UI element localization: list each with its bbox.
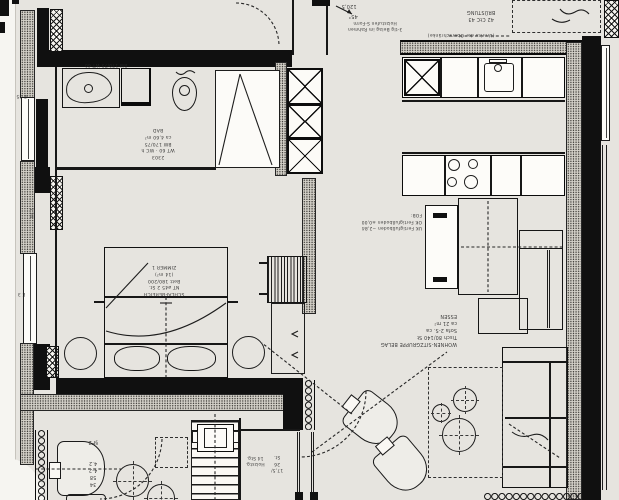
wall-left-solid-b xyxy=(33,167,50,193)
bedroom-label-block: SCHLAFBEREICH NT ø45 2 St. Bett 180/200 … xyxy=(134,249,194,296)
wall-line-corridor xyxy=(238,429,300,431)
counter-divider xyxy=(444,156,446,195)
page-edge-line xyxy=(15,0,16,500)
nightstand-left xyxy=(64,337,97,370)
railing-right xyxy=(602,145,607,490)
bench-inner-line xyxy=(547,250,550,328)
wall-bath-bottom-line xyxy=(56,167,216,170)
tub-dimension-label: BW 170/75 WT 60 xyxy=(60,60,152,67)
bed-pillow-line xyxy=(105,343,227,345)
clothes-rail xyxy=(267,256,307,303)
door-jamb-right xyxy=(311,432,314,500)
wall-bedroom-bottom xyxy=(56,378,303,394)
armchair-foot xyxy=(341,394,360,414)
top-right-note: 42 CtC 43 BRÜSTUNG xyxy=(450,1,512,21)
rail-bracket xyxy=(259,293,268,295)
wardrobe-xbox-2 xyxy=(287,104,323,139)
toilet-bowl xyxy=(179,85,190,96)
armchair-living-b xyxy=(370,433,436,500)
door-type-label: §F2 xyxy=(84,435,102,445)
nesting-table-small xyxy=(432,404,450,422)
wall-topleft-vertical xyxy=(37,8,49,52)
stair-riser-numbers: 34 58 4-2 4.2 xyxy=(85,450,101,486)
radiator-coil xyxy=(484,491,581,500)
window-left-lower xyxy=(23,253,37,344)
counter-front-edge xyxy=(402,100,565,102)
handle-mark xyxy=(433,213,447,218)
balcony-outline xyxy=(512,0,601,33)
counter-divider xyxy=(490,156,492,195)
round-table-b xyxy=(147,484,175,500)
stair-flange xyxy=(233,431,239,443)
bed-head-divider xyxy=(105,296,227,298)
wall-left-jamb xyxy=(36,99,48,168)
bed-side-tick xyxy=(94,301,104,303)
entry-door-arc xyxy=(236,3,279,46)
window-right-top xyxy=(601,45,610,141)
counter-divider xyxy=(440,58,442,97)
stove-burner xyxy=(448,159,460,171)
window-dimension: 1,24 xyxy=(23,205,33,221)
counter-back-edge xyxy=(402,152,565,154)
window-left-upper xyxy=(21,97,35,161)
square-table-dashed xyxy=(155,437,188,468)
bedroom-cabinet xyxy=(271,303,305,374)
left-wall-label-upper: E 35 xyxy=(14,86,29,98)
entry-door-frame xyxy=(326,0,328,55)
sofa-armrest-line xyxy=(549,362,551,487)
wall-inner-left-face xyxy=(55,67,57,378)
wall-hatch-left-c xyxy=(46,346,59,378)
bathroom-door-frame xyxy=(215,70,280,168)
bench-upper xyxy=(519,230,563,249)
hall-floor-note: UK Fertigfußboden −2,84 OK Fertigfußbode… xyxy=(318,202,422,230)
scan-artifact xyxy=(0,0,9,16)
wall-left-stipple-a xyxy=(20,10,35,98)
floor-plan-drawing: BW 170/75 WT 60 2303 WT 60 · WC h BW 170… xyxy=(0,0,619,500)
stair-landing-inner xyxy=(204,428,227,448)
wall-coil-center xyxy=(302,380,315,430)
dimension-45deg: 45° xyxy=(345,11,361,19)
wall-right-solid xyxy=(582,36,601,500)
bed-pillow-right xyxy=(167,346,216,371)
entry-door-frame xyxy=(292,0,294,55)
wall-stub-center xyxy=(283,378,302,430)
wardrobe-xbox-3 xyxy=(287,138,323,174)
wall-right-stipple xyxy=(566,42,582,500)
sofa-back-line xyxy=(503,361,567,363)
scan-artifact xyxy=(0,22,5,33)
entry-threshold xyxy=(312,0,330,6)
nesting-table-mid xyxy=(453,388,477,412)
living-label-block: WOHNEN-SITZGRUPPE BELAG Tisch 80/140 St … xyxy=(345,298,457,346)
bed-pillow-left xyxy=(114,346,160,371)
wall-hatch-topright xyxy=(604,0,619,38)
dining-table xyxy=(458,198,518,295)
scanned-floor-plan-page: BW 170/75 WT 60 2303 WT 60 · WC h BW 170… xyxy=(0,0,619,500)
page-margin-left xyxy=(0,0,16,500)
sink-faucet xyxy=(494,64,502,72)
bathroom-label-block: 2303 WT 60 · WC h BW 170/75 ca 4,60 m² B… xyxy=(126,101,190,159)
bed-side-tick xyxy=(228,301,238,303)
bathtub-drain xyxy=(84,84,93,93)
nesting-table-large xyxy=(442,418,476,452)
dimension-120: 120,5 xyxy=(337,0,361,9)
sofa-foot-line xyxy=(502,466,568,468)
toilet-cistern-squiggle xyxy=(176,71,195,75)
wall-bottom-stipple xyxy=(20,394,292,411)
sofa-seat-line xyxy=(505,417,566,419)
chair-partial-bottom xyxy=(66,494,106,500)
kitchen-counter-lower xyxy=(402,155,565,196)
door-jamb-left xyxy=(297,432,300,500)
stairs-note-2: 17,5/ 26 St. xyxy=(268,448,286,472)
rail-bracket xyxy=(259,262,268,264)
door-jamb-foot xyxy=(310,492,318,500)
stove-burner xyxy=(447,177,457,187)
tall-cabinet-xbox xyxy=(404,59,440,96)
armchair-foot xyxy=(49,462,61,479)
left-wall-label-lower: E 3 xyxy=(14,282,29,296)
round-table-a xyxy=(116,464,149,497)
counter-divider xyxy=(477,58,479,97)
bench-right-wall xyxy=(519,248,563,330)
stove-burner xyxy=(468,159,478,169)
scan-artifact xyxy=(12,0,19,4)
door-jamb-foot xyxy=(295,492,303,500)
handle-mark xyxy=(433,277,447,282)
wall-hatch-topleft xyxy=(50,9,63,52)
stair-flange xyxy=(192,431,198,443)
sink-tap-bar xyxy=(489,59,507,63)
stairs-note-1: Holzstg. 14 Stg. xyxy=(243,448,267,466)
counter-divider xyxy=(520,156,522,195)
wall-coil-left-bottom xyxy=(35,430,48,500)
wardrobe-xbox-1 xyxy=(287,68,323,105)
nightstand-right xyxy=(232,336,265,369)
wall-kitchen-top xyxy=(400,40,584,55)
counter-divider xyxy=(521,58,523,97)
stove-burner xyxy=(464,175,478,189)
